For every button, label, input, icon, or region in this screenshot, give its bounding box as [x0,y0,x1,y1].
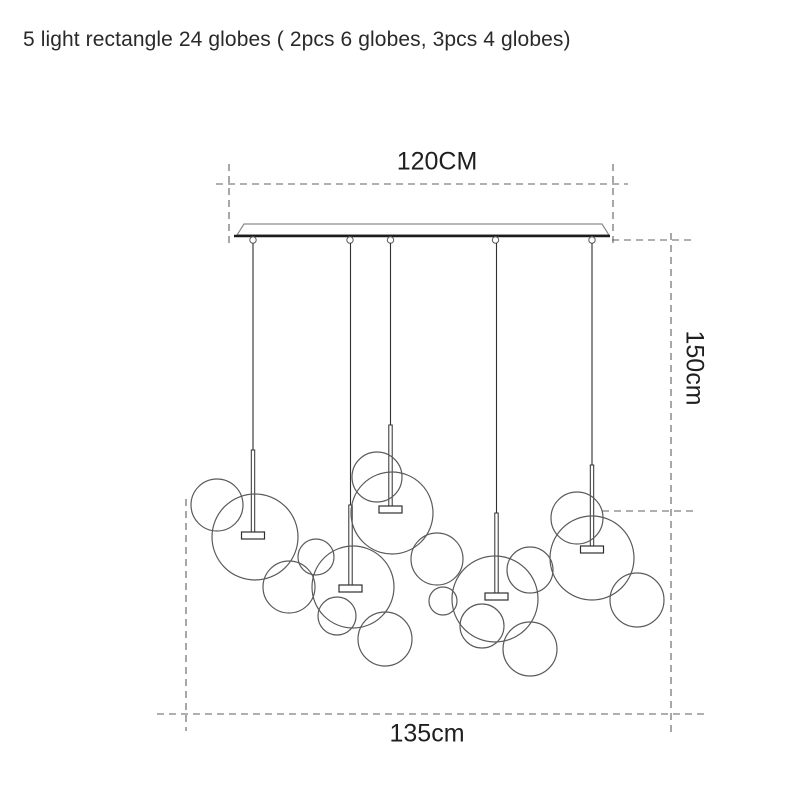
light-cap [379,506,402,513]
cord-rod [590,465,593,546]
product-dimension-diagram: 5 light rectangle 24 globes ( 2pcs 6 glo… [0,0,800,800]
canopy-bar [237,224,609,235]
globe [503,622,557,676]
globe [507,547,553,593]
globe [460,604,504,648]
cord-hanger [250,237,256,243]
cord-hanger [387,237,393,243]
globe [551,492,603,544]
light-cap [339,585,362,592]
globe [263,561,315,613]
globe [610,573,664,627]
cord-rod [251,450,254,532]
dimension-spread-label: 135cm [389,720,464,749]
globe [352,452,402,502]
cord-hanger [589,237,595,243]
light-cap [485,593,508,600]
cord-rod [495,513,498,593]
globe [411,533,463,585]
cord-hanger [347,237,353,243]
dimension-drop-label: 150cm [680,330,709,405]
globe [358,612,412,666]
dimension-width-label: 120CM [397,148,478,177]
light-cap [581,546,604,553]
light-cap [242,532,265,539]
cord-hanger [492,237,498,243]
cord-rod [389,425,392,506]
globe [191,479,243,531]
